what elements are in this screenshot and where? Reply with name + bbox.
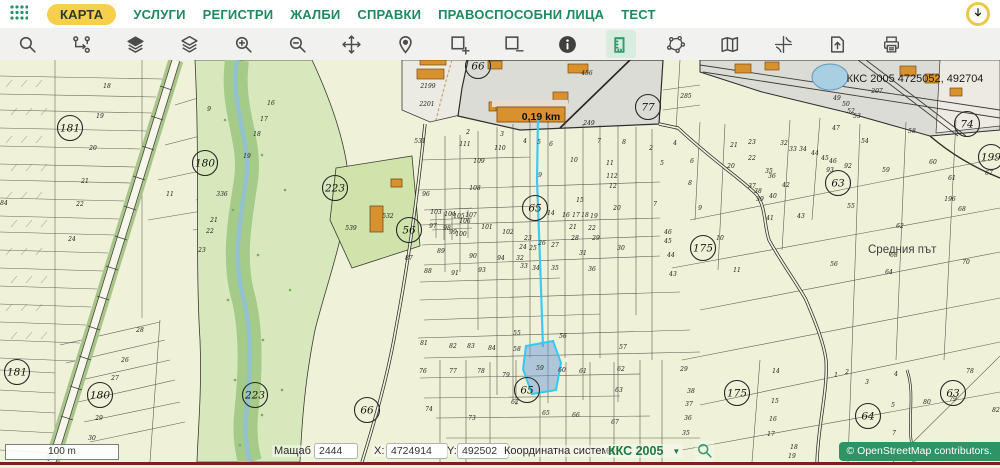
svg-text:1: 1	[834, 372, 838, 379]
svg-text:42: 42	[781, 182, 790, 189]
svg-text:7: 7	[653, 201, 657, 208]
svg-text:6: 6	[690, 158, 694, 165]
svg-text:55: 55	[513, 330, 521, 337]
svg-text:181: 181	[7, 367, 27, 379]
pond	[812, 64, 848, 90]
svg-text:207: 207	[870, 88, 883, 95]
svg-text:28: 28	[570, 235, 579, 242]
building-532	[370, 206, 383, 232]
svg-text:100: 100	[455, 231, 467, 238]
svg-text:26: 26	[120, 357, 129, 364]
layers-outline-icon	[179, 34, 200, 55]
nav-item-spravki[interactable]: СПРАВКИ	[357, 7, 421, 22]
svg-text:43: 43	[668, 271, 677, 278]
svg-text:87: 87	[405, 255, 413, 262]
svg-text:82: 82	[992, 407, 1000, 414]
svg-text:30: 30	[88, 435, 96, 442]
svg-text:175: 175	[727, 388, 747, 400]
svg-text:60: 60	[929, 159, 937, 166]
measure-ruler-icon	[611, 34, 632, 55]
svg-text:28: 28	[135, 327, 144, 334]
tool-zoom-in-button[interactable]	[228, 30, 258, 58]
svg-text:18: 18	[103, 83, 111, 90]
map-canvas[interactable]: 1819202122248428262729309161718193362122…	[0, 60, 1000, 468]
svg-text:74: 74	[425, 406, 433, 413]
svg-text:62: 62	[617, 366, 625, 373]
svg-text:50: 50	[842, 101, 850, 108]
svg-text:14: 14	[772, 368, 780, 375]
svg-text:180: 180	[195, 158, 215, 170]
svg-text:18: 18	[253, 131, 261, 138]
svg-text:66: 66	[360, 405, 374, 417]
svg-text:32: 32	[780, 140, 788, 147]
svg-text:22: 22	[587, 225, 596, 232]
svg-text:62: 62	[896, 223, 904, 230]
svg-text:22: 22	[75, 201, 84, 208]
svg-text:23: 23	[523, 235, 532, 242]
svg-text:249: 249	[582, 120, 595, 127]
map-toolbar	[0, 28, 1000, 61]
svg-text:39: 39	[756, 196, 764, 203]
coordinate-search-button[interactable]	[695, 441, 714, 463]
svg-text:27: 27	[110, 375, 119, 382]
svg-text:336: 336	[216, 191, 228, 198]
svg-text:14: 14	[547, 210, 555, 217]
svg-text:19: 19	[96, 113, 104, 120]
pan-icon	[341, 34, 362, 55]
measure-distance-label: 0,19 km	[522, 111, 561, 123]
scale-input[interactable]	[314, 443, 358, 459]
svg-text:36: 36	[768, 173, 776, 180]
svg-text:21: 21	[729, 142, 738, 149]
svg-text:78: 78	[477, 368, 485, 375]
tool-polygon-select-button[interactable]	[660, 30, 690, 58]
svg-text:109: 109	[473, 158, 485, 165]
svg-text:70: 70	[962, 259, 970, 266]
svg-text:84: 84	[488, 345, 496, 352]
svg-text:4: 4	[522, 138, 527, 145]
svg-text:23: 23	[747, 139, 756, 146]
svg-text:17: 17	[260, 116, 268, 123]
svg-text:111: 111	[459, 141, 470, 148]
svg-text:46: 46	[663, 229, 672, 236]
svg-text:63: 63	[615, 387, 623, 394]
svg-text:223: 223	[244, 390, 265, 402]
svg-text:67: 67	[985, 170, 993, 177]
svg-text:68: 68	[958, 206, 966, 213]
svg-text:47: 47	[831, 125, 840, 132]
svg-text:78: 78	[966, 368, 974, 375]
svg-text:89: 89	[437, 248, 445, 255]
svg-text:110: 110	[494, 145, 506, 152]
svg-text:16: 16	[769, 416, 777, 423]
crs-label: Координатна система:	[502, 445, 620, 457]
svg-text:8: 8	[688, 180, 692, 187]
svg-text:58: 58	[513, 346, 521, 353]
svg-text:22: 22	[205, 228, 214, 235]
svg-text:9: 9	[698, 205, 702, 212]
svg-text:79: 79	[502, 372, 510, 379]
zoom-out-icon	[287, 34, 308, 55]
info-icon	[557, 34, 578, 55]
svg-text:20: 20	[612, 205, 621, 212]
svg-text:63: 63	[946, 388, 960, 400]
svg-text:54: 54	[861, 138, 869, 145]
svg-text:45: 45	[820, 155, 829, 162]
crs-dropdown[interactable]: ККС 2005 ▼	[605, 444, 683, 458]
svg-text:64: 64	[885, 269, 893, 276]
svg-text:74: 74	[960, 119, 973, 131]
svg-text:175: 175	[693, 243, 713, 255]
apps-grid-button[interactable]	[8, 5, 30, 23]
svg-text:2: 2	[844, 369, 849, 376]
area-add-icon	[449, 34, 470, 55]
svg-text:19: 19	[788, 453, 796, 460]
chevron-down-icon: ▼	[672, 447, 680, 456]
svg-text:93: 93	[478, 267, 486, 274]
tool-zoom-out-button[interactable]	[282, 30, 312, 58]
svg-text:40: 40	[768, 193, 777, 200]
svg-text:10: 10	[716, 235, 724, 242]
location-pin-icon	[395, 34, 416, 55]
svg-text:38: 38	[687, 388, 695, 395]
svg-text:180: 180	[90, 390, 110, 402]
svg-text:19: 19	[243, 153, 251, 160]
svg-text:56: 56	[559, 333, 567, 340]
svg-text:15: 15	[771, 398, 779, 405]
svg-text:112: 112	[606, 173, 618, 180]
svg-text:84: 84	[0, 200, 8, 207]
svg-text:43: 43	[796, 213, 805, 220]
nav-item-registri[interactable]: РЕГИСТРИ	[203, 7, 274, 22]
svg-text:18: 18	[790, 444, 798, 451]
export-file-icon	[827, 34, 848, 55]
nav-item-test[interactable]: ТЕСТ	[621, 7, 655, 22]
tool-area-remove-button[interactable]	[498, 30, 528, 58]
svg-text:223: 223	[324, 183, 345, 195]
layers-filled-icon	[125, 34, 146, 55]
map-sheet-icon	[719, 34, 740, 55]
svg-text:60: 60	[558, 367, 566, 374]
svg-text:63: 63	[831, 178, 845, 190]
svg-text:5: 5	[891, 402, 895, 409]
svg-text:58: 58	[908, 128, 916, 135]
svg-text:9: 9	[538, 172, 542, 179]
svg-text:11: 11	[166, 191, 174, 198]
polygon-select-icon	[665, 34, 686, 55]
svg-text:81: 81	[420, 340, 428, 347]
svg-text:35: 35	[551, 265, 559, 272]
tool-layer-tree-button[interactable]	[66, 30, 96, 58]
svg-text:2199: 2199	[419, 83, 435, 90]
building-roof-light	[492, 100, 568, 107]
print-icon	[881, 34, 902, 55]
svg-text:76: 76	[419, 368, 427, 375]
svg-text:11: 11	[733, 267, 741, 274]
svg-text:7: 7	[892, 430, 896, 437]
svg-text:32: 32	[516, 255, 524, 262]
svg-text:88: 88	[424, 268, 432, 275]
svg-text:66: 66	[572, 412, 580, 419]
svg-text:285: 285	[679, 93, 692, 100]
svg-text:16: 16	[562, 212, 570, 219]
svg-text:539: 539	[345, 225, 357, 232]
svg-text:61: 61	[579, 368, 587, 375]
svg-text:55: 55	[847, 203, 855, 210]
nav-item-uslugi[interactable]: УСЛУГИ	[133, 7, 185, 22]
tool-layers-outline-button[interactable]	[174, 30, 204, 58]
svg-text:45: 45	[663, 238, 672, 245]
svg-text:96: 96	[422, 191, 430, 198]
svg-text:24: 24	[518, 244, 527, 251]
svg-text:41: 41	[765, 215, 774, 222]
svg-text:59: 59	[536, 365, 544, 372]
svg-text:10: 10	[570, 157, 578, 164]
svg-text:12: 12	[609, 183, 617, 190]
tool-area-add-button[interactable]	[444, 30, 474, 58]
svg-text:97: 97	[429, 223, 437, 230]
svg-text:2: 2	[648, 145, 653, 152]
svg-text:49: 49	[832, 95, 841, 102]
svg-text:9: 9	[207, 106, 211, 113]
svg-text:73: 73	[468, 415, 476, 422]
svg-text:34: 34	[799, 146, 807, 153]
svg-text:33: 33	[520, 263, 528, 270]
svg-text:531: 531	[414, 138, 425, 145]
svg-text:36: 36	[684, 415, 692, 422]
svg-text:31: 31	[579, 250, 587, 257]
tool-layers-filled-button[interactable]	[120, 30, 150, 58]
svg-text:26: 26	[537, 240, 546, 247]
svg-text:90: 90	[469, 253, 477, 260]
svg-text:82: 82	[449, 343, 457, 350]
svg-text:108: 108	[469, 185, 481, 192]
zoom-in-icon	[233, 34, 254, 55]
svg-text:107: 107	[465, 212, 477, 219]
svg-text:20: 20	[726, 163, 735, 170]
tool-measure-button[interactable]	[606, 30, 636, 58]
svg-text:36: 36	[588, 266, 596, 273]
svg-text:91: 91	[451, 270, 459, 277]
scale-bar: 100 m	[5, 444, 119, 460]
svg-text:4: 4	[893, 371, 898, 378]
svg-text:23: 23	[197, 247, 206, 254]
svg-text:29: 29	[679, 366, 688, 373]
coordinate-readout-overlay: ККС 2005 4725052, 492704	[847, 73, 984, 85]
svg-text:181: 181	[60, 123, 80, 135]
svg-text:59: 59	[882, 167, 890, 174]
top-navbar: КАРТА УСЛУГИ РЕГИСТРИ ЖАЛБИ СПРАВКИ ПРАВ…	[0, 0, 1000, 28]
tool-location-button[interactable]	[390, 30, 420, 58]
svg-text:11: 11	[606, 160, 614, 167]
svg-text:4: 4	[672, 140, 677, 147]
svg-text:44: 44	[810, 150, 819, 157]
svg-text:2201: 2201	[418, 101, 434, 108]
svg-text:65: 65	[542, 410, 550, 417]
svg-text:199: 199	[981, 152, 1000, 164]
svg-text:2: 2	[465, 129, 470, 136]
svg-text:6: 6	[549, 141, 553, 148]
bottom-red-line	[0, 462, 1000, 465]
svg-text:46: 46	[828, 158, 837, 165]
svg-text:20: 20	[88, 145, 97, 152]
coordinate-search-icon	[696, 447, 713, 462]
svg-text:21: 21	[568, 224, 577, 231]
nav-item-pravosposobni-lica[interactable]: ПРАВОСПОСОБНИ ЛИЦА	[438, 7, 604, 22]
svg-text:27: 27	[550, 242, 559, 249]
svg-text:34: 34	[532, 265, 540, 272]
osm-attribution[interactable]: © OpenStreetMap contributors.	[839, 442, 1000, 461]
svg-text:8: 8	[622, 139, 626, 146]
svg-text:17: 17	[572, 212, 580, 219]
svg-text:44: 44	[666, 252, 675, 259]
tool-search-button[interactable]	[12, 30, 42, 58]
svg-text:5: 5	[537, 139, 541, 146]
road-name-label: Средния път	[868, 244, 937, 256]
download-button[interactable]	[966, 2, 990, 26]
svg-text:3: 3	[865, 379, 869, 386]
svg-text:532: 532	[382, 213, 394, 220]
svg-text:53: 53	[853, 113, 861, 120]
svg-text:56: 56	[830, 261, 838, 268]
svg-text:17: 17	[767, 431, 775, 438]
layer-tree-icon	[71, 34, 92, 55]
svg-text:65: 65	[528, 203, 542, 215]
svg-text:37: 37	[685, 401, 693, 408]
svg-text:22: 22	[747, 155, 756, 162]
tool-print-button[interactable]	[876, 30, 906, 58]
svg-text:80: 80	[923, 399, 931, 406]
svg-text:77: 77	[449, 368, 457, 375]
search-icon	[17, 34, 38, 55]
tool-map-sheet-button[interactable]	[714, 30, 744, 58]
svg-text:456: 456	[580, 70, 593, 77]
download-arrow-icon	[971, 6, 985, 23]
svg-text:64: 64	[861, 411, 874, 423]
coordinates-crosshair-icon	[773, 34, 794, 55]
apps-grid-icon	[10, 5, 28, 23]
x-label: X:	[372, 445, 386, 457]
svg-text:29: 29	[591, 235, 600, 242]
svg-text:103: 103	[430, 209, 442, 216]
svg-text:62: 62	[511, 399, 519, 406]
nav-item-karta[interactable]: КАРТА	[47, 4, 116, 25]
svg-text:38: 38	[754, 188, 762, 195]
tool-info-button[interactable]	[552, 30, 582, 58]
crs-value: ККС 2005	[608, 444, 663, 458]
svg-text:65: 65	[520, 385, 534, 397]
svg-text:66: 66	[471, 61, 485, 73]
svg-text:15: 15	[576, 197, 584, 204]
svg-text:101: 101	[481, 224, 492, 231]
svg-text:19: 19	[590, 213, 598, 220]
tool-coordinates-button[interactable]	[768, 30, 798, 58]
svg-text:57: 57	[619, 344, 627, 351]
svg-text:77: 77	[641, 102, 655, 114]
svg-text:21: 21	[80, 178, 89, 185]
svg-text:25: 25	[528, 245, 537, 252]
svg-text:18: 18	[581, 212, 589, 219]
svg-text:56: 56	[402, 225, 416, 237]
svg-text:7: 7	[597, 138, 601, 145]
svg-text:33: 33	[789, 146, 797, 153]
svg-text:61: 61	[948, 175, 956, 182]
tool-pan-button[interactable]	[336, 30, 366, 58]
svg-text:106: 106	[459, 218, 471, 225]
svg-text:5: 5	[660, 160, 664, 167]
svg-text:24: 24	[67, 236, 76, 243]
svg-text:16: 16	[267, 100, 275, 107]
svg-text:67: 67	[611, 419, 619, 426]
svg-text:29: 29	[94, 415, 103, 422]
nav-item-zhalbi[interactable]: ЖАЛБИ	[290, 7, 340, 22]
svg-text:102: 102	[502, 229, 514, 236]
x-coordinate-input[interactable]	[386, 443, 448, 459]
tool-export-button[interactable]	[822, 30, 852, 58]
svg-text:196: 196	[944, 196, 956, 203]
svg-text:94: 94	[497, 255, 505, 262]
svg-text:30: 30	[617, 245, 625, 252]
area-remove-icon	[503, 34, 524, 55]
svg-text:21: 21	[209, 217, 218, 224]
svg-text:35: 35	[682, 430, 690, 437]
svg-text:92: 92	[844, 163, 852, 170]
svg-text:83: 83	[467, 343, 475, 350]
svg-text:3: 3	[500, 131, 504, 138]
